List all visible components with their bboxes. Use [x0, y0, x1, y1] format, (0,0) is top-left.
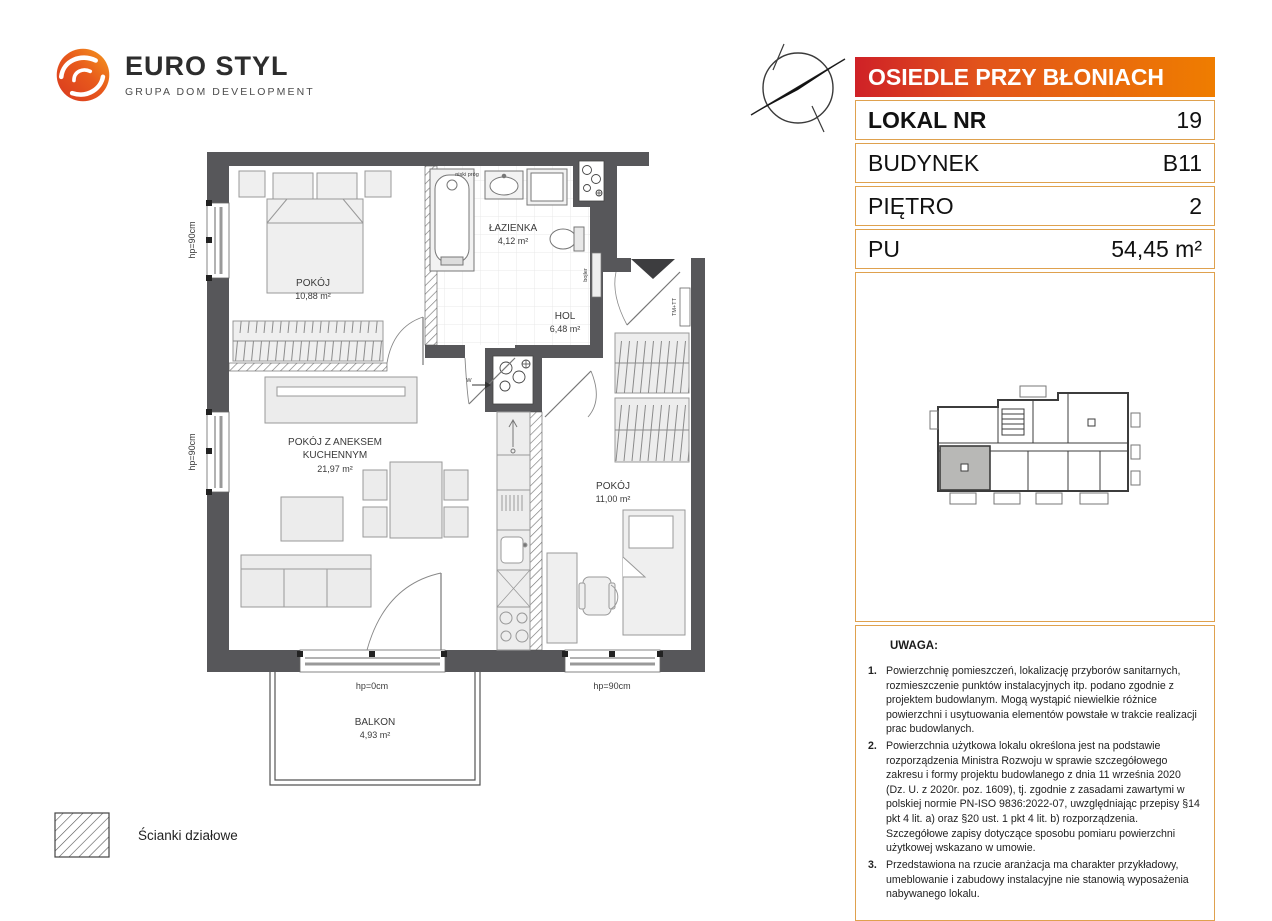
- row-value: 2: [1189, 193, 1202, 220]
- bedroom2-name: POKÓJ: [596, 479, 630, 492]
- bedroom2-furniture: [547, 510, 685, 643]
- company-logo: EURO STYL GRUPA DOM DEVELOPMENT: [54, 46, 315, 104]
- note-text: Powierzchnię pomieszczeń, lokalizację pr…: [886, 664, 1204, 737]
- legend: Ścianki działowe: [54, 812, 238, 858]
- table-row-budynek: BUDYNEK B11: [855, 143, 1215, 183]
- living-room-furniture: [241, 377, 468, 607]
- dining-table: [390, 462, 442, 538]
- hall-area: 6,48 m²: [550, 324, 581, 334]
- threshold-label: niski próg: [455, 172, 479, 178]
- bedroom1-furniture: [233, 171, 391, 361]
- note-item: 3. Przedstawiona na rzucie aranżacja ma …: [864, 858, 1204, 902]
- table-row-pietro: PIĘTRO 2: [855, 186, 1215, 226]
- legend-label: Ścianki działowe: [138, 828, 238, 843]
- row-label: PIĘTRO: [868, 193, 954, 220]
- balcony-area: 4,93 m²: [360, 730, 391, 740]
- logo-mark-icon: [54, 46, 112, 104]
- bedroom2-area: 11,00 m²: [596, 494, 631, 504]
- hall-wardrobes: [615, 333, 689, 462]
- bedroom1-name: POKÓJ: [296, 276, 330, 289]
- entrance-marker-icon: [631, 259, 675, 279]
- vent-label: W: [466, 378, 472, 384]
- bathroom-name: ŁAZIENKA: [489, 223, 538, 234]
- notes-title: UWAGA:: [890, 640, 1204, 652]
- kitchen-units: [497, 412, 530, 650]
- note-text: Powierzchnia użytkowa lokalu określona j…: [886, 739, 1204, 856]
- apartment-floor-plan: TM+TT: [175, 145, 735, 795]
- balcony-name: BALKON: [355, 717, 396, 728]
- living-name-line1: POKÓJ Z ANEKSEM: [288, 435, 382, 448]
- project-name-header: OSIEDLE PRZY BŁONIACH: [855, 57, 1215, 97]
- living-area: 21,97 m²: [317, 464, 353, 474]
- building-keyplan: [928, 385, 1143, 517]
- bathroom-area: 4,12 m²: [498, 236, 529, 246]
- row-label: PU: [868, 236, 900, 263]
- boiler-label: bojler: [583, 268, 589, 282]
- note-number: 1.: [864, 664, 886, 737]
- row-value: 54,45 m²: [1111, 236, 1202, 263]
- desk: [547, 553, 577, 643]
- building-keyplan-box: [855, 272, 1215, 622]
- floor-plan-sheet: { "logo": { "title": "EURO STYL", "subti…: [0, 0, 1272, 900]
- toilet: [550, 229, 576, 249]
- hp-left-bottom: hp=90cm: [187, 433, 197, 470]
- unit-info-panel: OSIEDLE PRZY BŁONIACH LOKAL NR 19 BUDYNE…: [855, 57, 1215, 921]
- note-number: 2.: [864, 739, 886, 856]
- boiler: [592, 253, 601, 297]
- sofa: [241, 555, 371, 607]
- row-value: B11: [1163, 150, 1202, 177]
- office-chair: [583, 577, 611, 615]
- sideboard: [265, 377, 417, 423]
- coffee-table: [281, 497, 343, 541]
- notes-box: UWAGA: 1. Powierzchnię pomieszczeń, loka…: [855, 625, 1215, 921]
- row-label: LOKAL NR: [868, 107, 986, 134]
- table-row-pu: PU 54,45 m²: [855, 229, 1215, 269]
- hall-name: HOL: [555, 311, 576, 322]
- note-number: 3.: [864, 858, 886, 902]
- entrance-label: TM+TT: [672, 297, 678, 316]
- row-label: BUDYNEK: [868, 150, 979, 177]
- hp-left-top: hp=90cm: [187, 221, 197, 258]
- logo-subtitle: GRUPA DOM DEVELOPMENT: [125, 86, 315, 98]
- note-text: Przedstawiona na rzucie aranżacja ma cha…: [886, 858, 1204, 902]
- table-row-lokal-nr: LOKAL NR 19: [855, 100, 1215, 140]
- note-item: 2. Powierzchnia użytkowa lokalu określon…: [864, 739, 1204, 856]
- row-value: 19: [1176, 107, 1202, 134]
- partition-wall-swatch-icon: [54, 812, 110, 858]
- logo-title: EURO STYL: [125, 53, 315, 80]
- hp-bottom-right: hp=90cm: [593, 681, 630, 691]
- north-arrow-icon: [746, 40, 850, 136]
- hp-balcony-door: hp=0cm: [356, 681, 388, 691]
- bedroom1-area: 10,88 m²: [295, 291, 331, 301]
- note-item: 1. Powierzchnię pomieszczeń, lokalizację…: [864, 664, 1204, 737]
- living-name-line2: KUCHENNYM: [303, 450, 367, 461]
